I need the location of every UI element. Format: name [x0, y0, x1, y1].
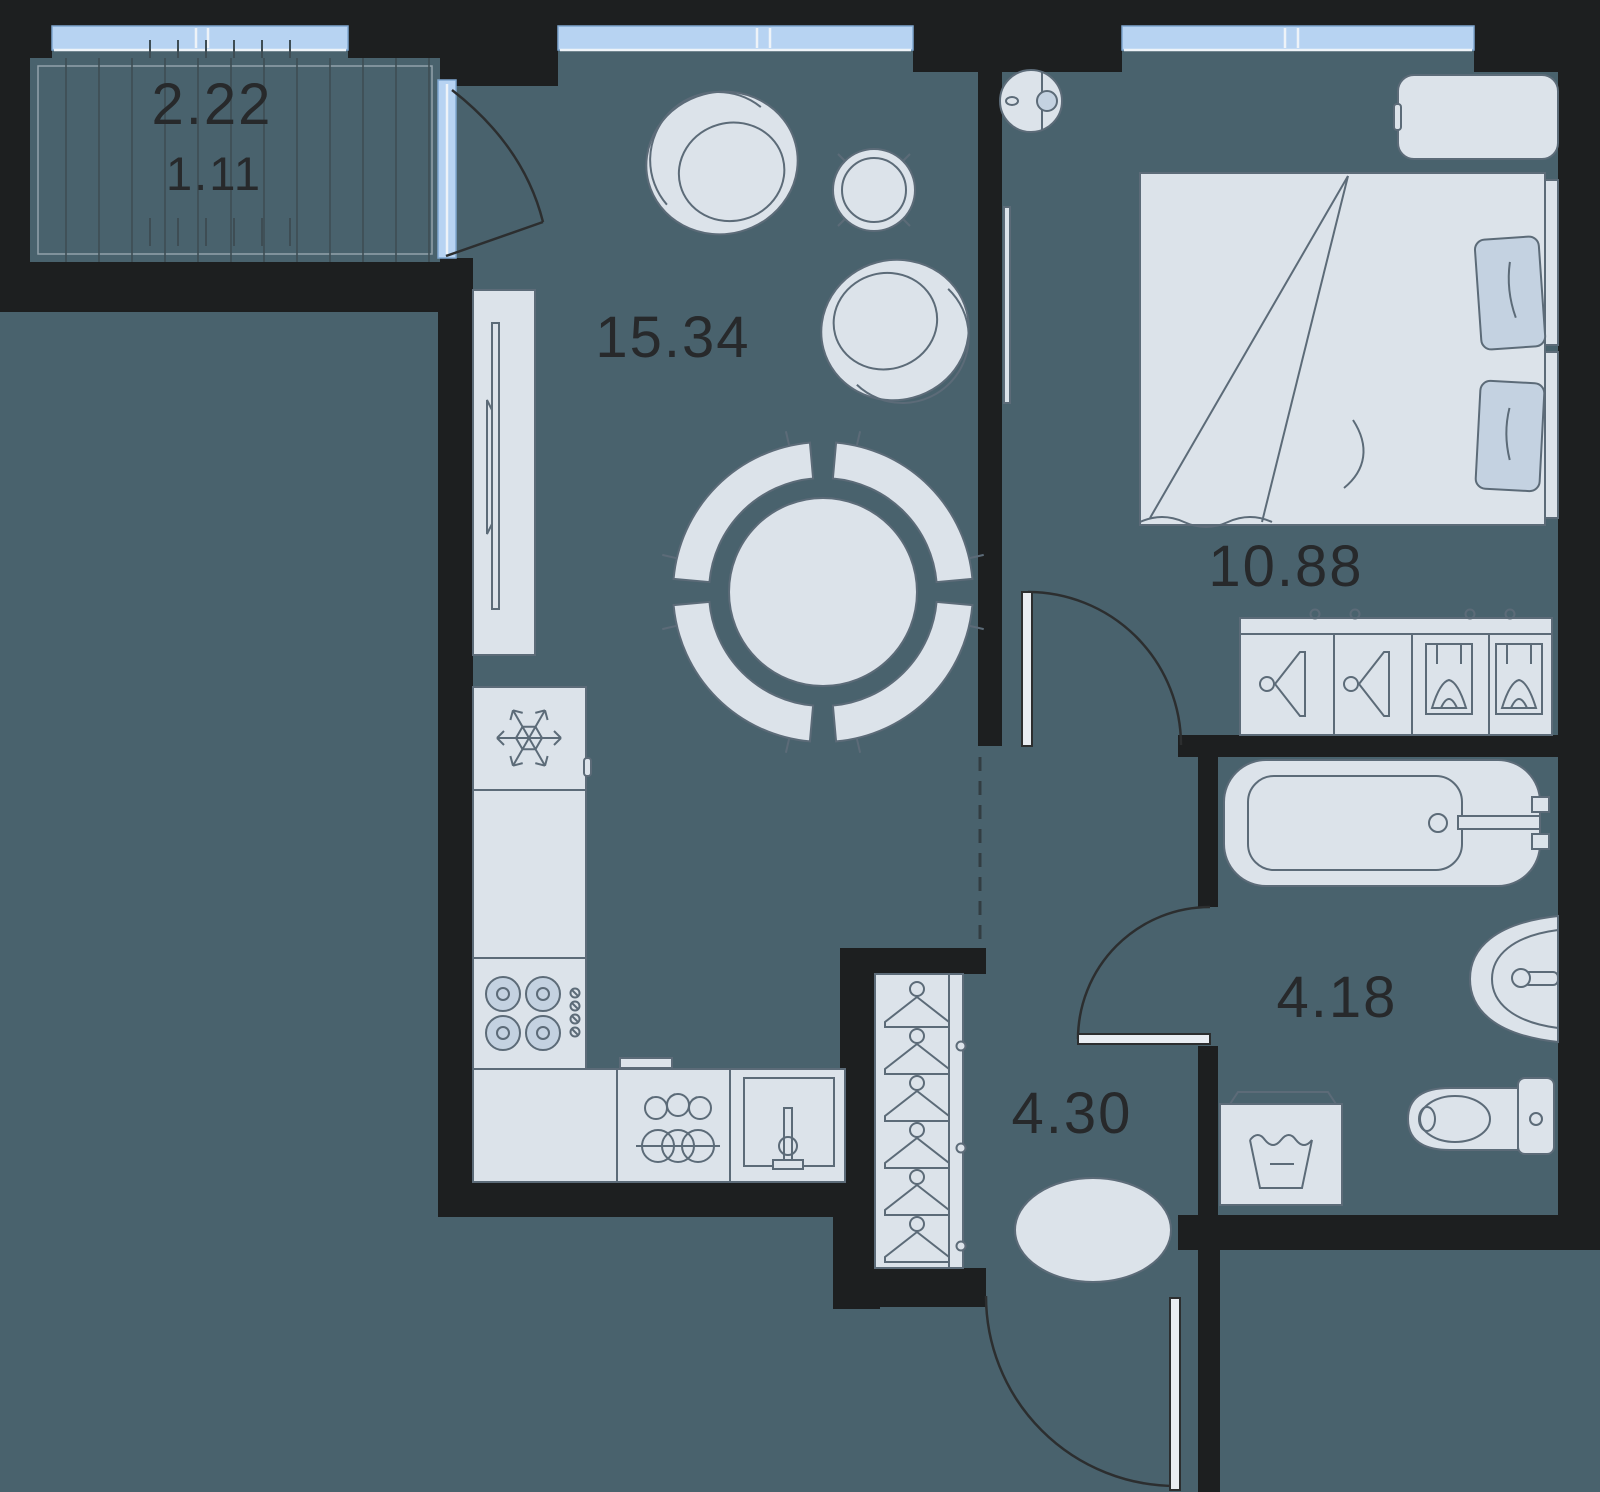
toilet [1408, 1078, 1554, 1154]
tv-stand [473, 290, 535, 655]
bathtub-tap [1532, 797, 1549, 812]
hallway: 4.30 [875, 757, 1180, 1490]
bedroom-door-leaf [1022, 592, 1032, 746]
wall-bathroom-bottom [1178, 1215, 1600, 1250]
balcony-window [52, 26, 348, 50]
living-area-label: 15.34 [595, 305, 750, 370]
bathroom-door-leaf [1078, 1034, 1210, 1044]
wall-bedroom-bathroom [1178, 735, 1600, 757]
living-window [558, 26, 913, 50]
dishwasher [617, 1058, 730, 1182]
fridge-handle [584, 758, 591, 776]
kitchen-corner-counter [473, 1069, 617, 1182]
wall-kitchen-bottom [438, 1182, 880, 1217]
living-room: 15.34 [473, 74, 997, 766]
wall-living-bedroom [978, 58, 1002, 746]
bed [1140, 173, 1558, 527]
bathtub-spout [1458, 816, 1540, 829]
pillow [1474, 236, 1546, 350]
balcony-area-full-label: 2.22 [152, 72, 273, 137]
armchair-2 [805, 243, 985, 421]
wardrobe-frame-bottom [840, 1268, 986, 1307]
bathroom: 4.18 [1078, 760, 1558, 1205]
headboard [1545, 180, 1558, 345]
bedroom-area-label: 10.88 [1208, 534, 1363, 599]
wardrobe-frame-top [840, 948, 986, 974]
wall-entry-right [1198, 1250, 1220, 1492]
washing-machine [1220, 1092, 1342, 1205]
wall-bathroom-left-lower [1198, 1046, 1218, 1217]
bedroom: 10.88 [1000, 70, 1558, 746]
pillow [1475, 380, 1545, 491]
robot-vacuum [1000, 70, 1062, 132]
wall-cap-living-bedroom [913, 26, 1122, 72]
bathroom-door [1078, 907, 1210, 1044]
balcony-area-counted-label: 1.11 [166, 147, 262, 200]
bedroom-window [1122, 26, 1474, 50]
side-table [833, 149, 915, 231]
bathroom-area-label: 4.18 [1277, 965, 1398, 1030]
hallway-area-label: 4.30 [1012, 1081, 1133, 1146]
stove [473, 958, 586, 1069]
dresser [1240, 610, 1552, 736]
kitchen-tall-cabinet [473, 790, 586, 958]
kitchen [473, 687, 845, 1182]
balcony-door-leaf [446, 222, 543, 256]
bedroom-tv-icon [1004, 207, 1010, 403]
balcony-door [438, 80, 543, 258]
nightstand-handle [1394, 104, 1401, 130]
bathtub-tap [1532, 834, 1549, 849]
bathroom-door-swing-arc [1078, 907, 1210, 1039]
headboard [1545, 352, 1558, 518]
bathtub [1224, 760, 1549, 886]
nightstand [1394, 75, 1558, 159]
fridge [473, 687, 591, 790]
washbasin [1470, 916, 1558, 1042]
entrance-door-swing-arc [986, 1296, 1176, 1486]
balcony-door-swing-arc [452, 90, 543, 222]
entrance-door [986, 1296, 1180, 1490]
entrance-door-leaf [1170, 1298, 1180, 1490]
wall-right [1558, 0, 1600, 1250]
bedroom-door [1022, 592, 1181, 746]
armchair-1 [630, 74, 814, 251]
dining-table [729, 498, 917, 686]
tv-icon [492, 323, 499, 609]
cutting-board [620, 1058, 672, 1068]
pouf [1015, 1178, 1171, 1282]
windows [52, 26, 1474, 50]
wall-living-west [438, 258, 473, 1217]
wall-bathroom-left-upper [1198, 757, 1218, 907]
balcony: 2.22 1.11 [30, 40, 440, 262]
kitchen-sink-unit [730, 1069, 845, 1182]
floor-plan: 2.22 1.11 [0, 0, 1600, 1492]
wall-balcony-bottom [0, 262, 440, 312]
toilet-tank [1518, 1078, 1554, 1154]
wardrobe [875, 974, 966, 1268]
dining-set [649, 418, 997, 766]
bedroom-door-swing-arc [1028, 592, 1181, 745]
